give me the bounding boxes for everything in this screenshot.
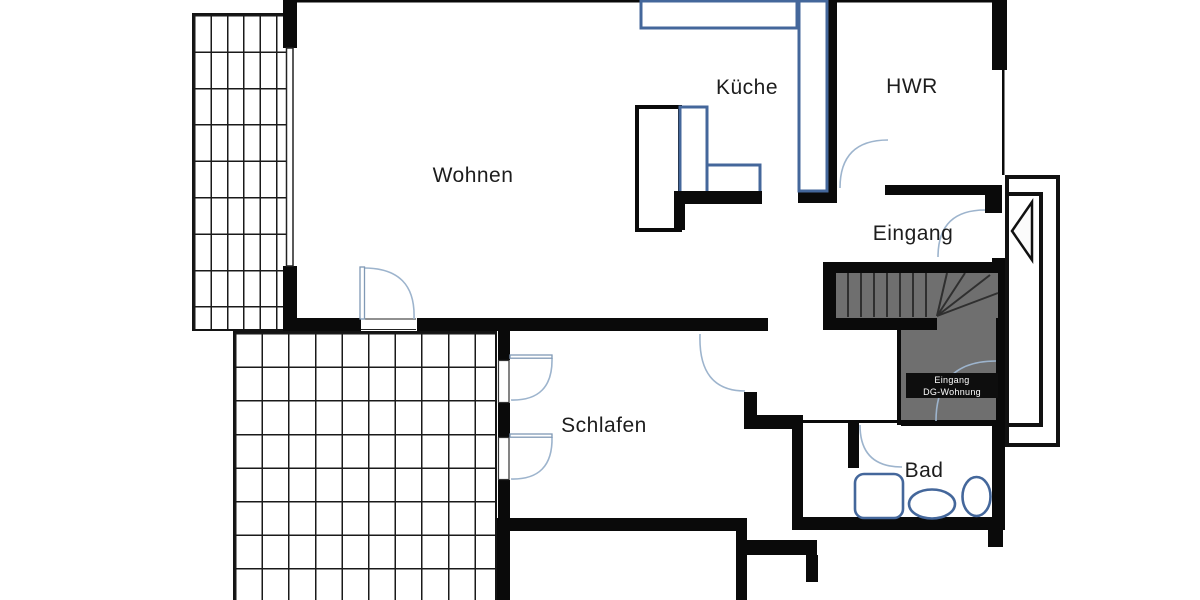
wohnen-terrace-door-arc [364,268,414,319]
dg-entrance-label: Eingang DG-Wohnung [906,373,998,398]
kitchen-counter-top [641,1,797,28]
dg-entrance-label-line1: Eingang [906,374,998,386]
floorplan-page: Wohnen Küche HWR Eingang Schlafen Bad Ei… [0,0,1200,600]
shower [855,474,903,518]
staircase [823,262,1008,426]
hwr-door-arc [840,140,888,188]
schlafen-terrace-door-arc-2 [511,437,552,479]
kitchen-island-counter-h [707,165,760,193]
room-label-wohnen: Wohnen [433,164,514,188]
kitchen-counter-right [799,1,827,191]
room-label-hwr: HWR [886,75,938,99]
kitchen-island-counter-v [680,107,707,193]
room-label-kueche: Küche [716,76,778,100]
stair-landing [901,318,996,422]
floorplan-drawing [0,0,1200,600]
dg-entrance-label-line2: DG-Wohnung [906,386,998,398]
stair-steps [835,272,998,318]
schlafen-terrace-door-arc-1 [511,358,552,400]
window-sills [287,48,510,480]
kitchen-island-table [637,107,680,230]
bad-door-arc [860,425,902,467]
toilet [909,490,955,519]
room-label-bad: Bad [905,459,944,483]
hall-door-arc [700,334,745,391]
room-label-schlafen: Schlafen [561,414,647,438]
washbasin [963,477,991,516]
kitchen-island-base [674,191,762,230]
door-leaves [360,267,552,437]
room-label-eingang: Eingang [873,222,954,246]
entrance-door-frame [1007,177,1058,445]
